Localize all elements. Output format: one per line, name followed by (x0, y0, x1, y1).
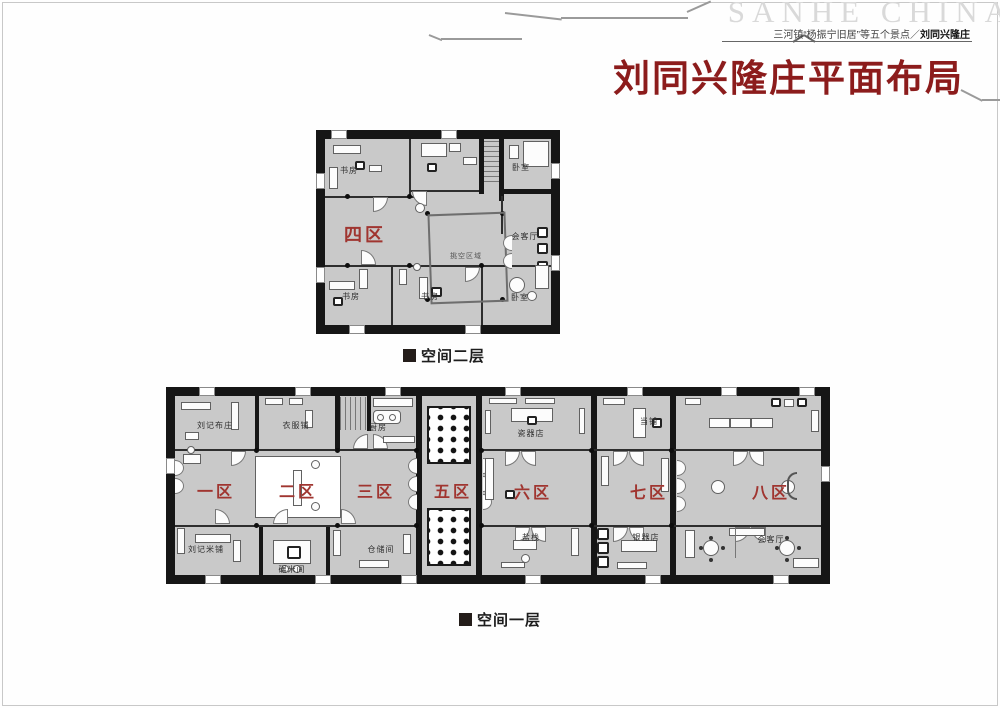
caption-text: 空间二层 (421, 345, 485, 366)
room-label-study-top: 书房 (317, 165, 381, 176)
zone-label-2: 二区 (266, 478, 330, 502)
breadcrumb: 三河镇“杨振宁旧居”等五个景点／刘同兴隆庄 (773, 26, 970, 41)
caption-marker-icon (403, 349, 416, 362)
room-label-rice-shop: 刘记米铺 (174, 544, 238, 555)
zone-label-5: 五区 (421, 478, 485, 502)
goods-display-panel-top (427, 406, 471, 464)
room-label-reception-1f: 会客厅 (739, 534, 803, 545)
zone-label-7: 七区 (617, 479, 681, 503)
zone-label-8: 八区 (739, 479, 803, 503)
room-label-kitchen: 厨房 (346, 422, 410, 433)
page-title: 刘同兴隆庄平面布局 (613, 48, 964, 102)
breadcrumb-path: 三河镇“杨振宁旧居”等五个景点／ (773, 30, 920, 41)
floor-plan-first: 一区 二区 三区 五区 六区 七区 八区 刘记布庄 衣服铺 厨房 瓷器店 当铺 … (166, 387, 830, 584)
courtyard-well-top (311, 460, 320, 469)
room-label-study-bm: 书房 (398, 291, 462, 302)
brochure-page: SANHE CHINA 三河镇“杨振宁旧居”等五个景点／刘同兴隆庄 刘同兴隆庄平… (0, 0, 1000, 708)
room-label-salt-store: 盐栈 (499, 532, 563, 543)
room-label-rice-mill: 碾米间 (260, 564, 324, 575)
room-label-silver-shop: 银器店 (614, 532, 678, 543)
breadcrumb-current: 刘同兴隆庄 (920, 30, 970, 41)
floor-plan-second: 四区 书房 卧室 挑空区域 会客厅 书房 书房 卧室 (316, 130, 560, 334)
room-label-clothes-store: 衣服铺 (264, 420, 328, 431)
room-label-pawnshop: 当铺 (617, 416, 681, 427)
zone-label-6: 六区 (501, 479, 565, 503)
page-border (2, 2, 998, 706)
zone-label-1: 一区 (184, 478, 248, 502)
caption-first-floor: 空间一层 (459, 609, 541, 630)
room-label-bedroom-top: 卧室 (489, 162, 553, 173)
room-label-void-area: 挑空区域 (434, 251, 498, 261)
courtyard-well-bottom (311, 502, 320, 511)
room-label-bedroom-bottom: 卧室 (488, 292, 552, 303)
zone-label-3: 三区 (344, 478, 408, 502)
caption-marker-icon (459, 613, 472, 626)
caption-text: 空间一层 (477, 609, 541, 630)
room-label-reception-2f: 会客厅 (493, 231, 557, 242)
goods-display-panel-bottom (427, 508, 471, 566)
room-label-cloth-shop: 刘记布庄 (183, 420, 247, 431)
zone-label-4: 四区 (333, 221, 397, 247)
caption-second-floor: 空间二层 (403, 345, 485, 366)
room-label-porcelain-shop: 瓷器店 (499, 428, 563, 439)
room-label-storage: 仓储间 (349, 544, 413, 555)
room-label-study-bl: 书房 (319, 291, 383, 302)
